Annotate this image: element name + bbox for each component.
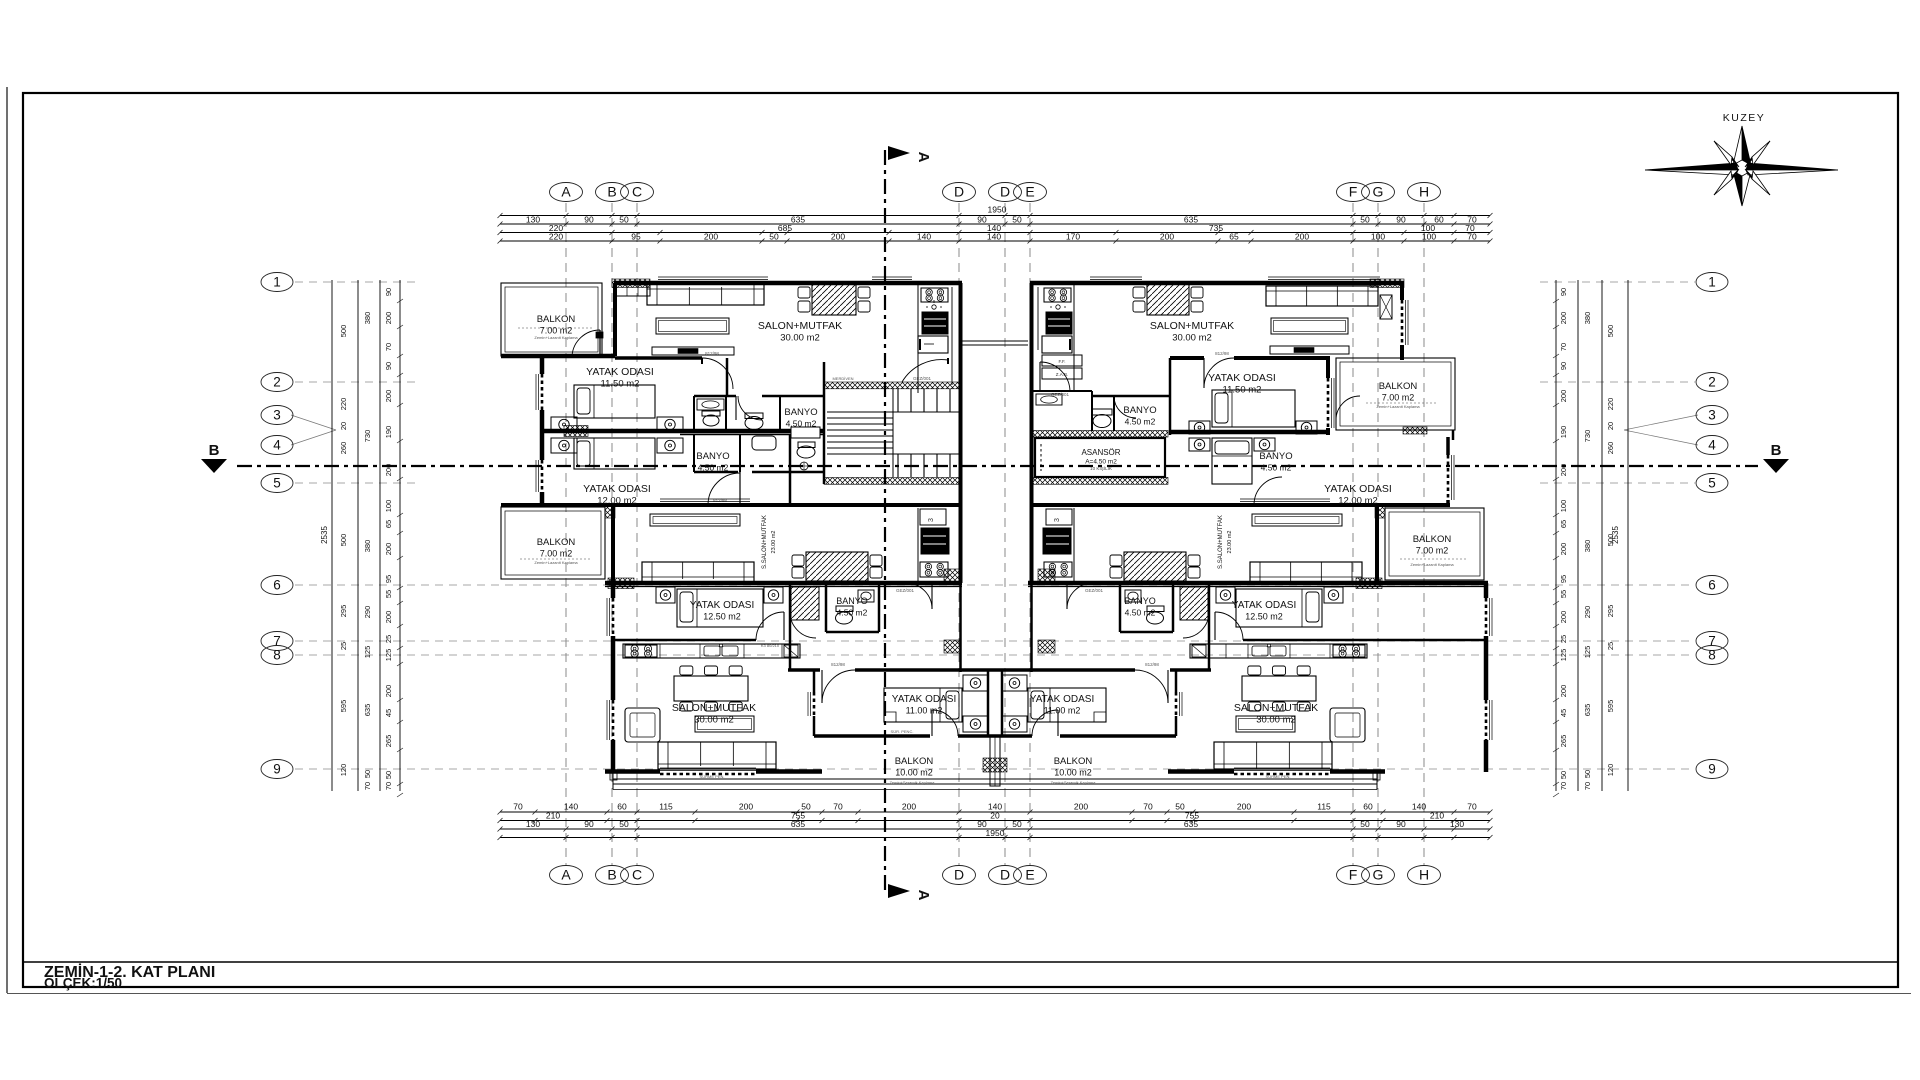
svg-text:90: 90 — [1559, 288, 1568, 296]
svg-text:220: 220 — [339, 398, 348, 411]
svg-text:4.50 m2: 4.50 m2 — [1261, 463, 1292, 473]
svg-text:635: 635 — [791, 819, 805, 829]
svg-text:200: 200 — [1160, 232, 1174, 242]
svg-text:90: 90 — [1396, 215, 1406, 225]
svg-text:635: 635 — [1583, 704, 1592, 717]
svg-text:220: 220 — [1606, 398, 1615, 411]
svg-text:70: 70 — [1467, 802, 1477, 812]
svg-text:295: 295 — [339, 605, 348, 618]
svg-text:130: 130 — [526, 215, 540, 225]
svg-text:20: 20 — [1606, 422, 1615, 430]
svg-text:YATAK ODASI: YATAK ODASI — [1324, 483, 1392, 495]
svg-text:500: 500 — [1606, 325, 1615, 338]
svg-text:25: 25 — [339, 642, 348, 650]
svg-text:23.00 m2: 23.00 m2 — [771, 531, 777, 554]
svg-text:70: 70 — [363, 782, 372, 790]
svg-text:50: 50 — [384, 771, 393, 779]
svg-text:90: 90 — [584, 819, 594, 829]
svg-text:50: 50 — [1012, 819, 1022, 829]
svg-text:10 KİŞİLİK: 10 KİŞİLİK — [1090, 465, 1113, 471]
svg-text:4.50 m2: 4.50 m2 — [786, 419, 817, 429]
svg-text:140: 140 — [987, 232, 1001, 242]
svg-text:SÜRME PEN.: SÜRME PEN. — [1266, 774, 1291, 779]
svg-text:170: 170 — [1066, 232, 1080, 242]
svg-text:65: 65 — [384, 520, 393, 528]
svg-text:7.00 m2: 7.00 m2 — [1382, 393, 1415, 403]
svg-text:125: 125 — [363, 646, 372, 659]
svg-text:2535: 2535 — [320, 526, 329, 544]
svg-text:500: 500 — [1606, 534, 1615, 547]
svg-text:1950: 1950 — [988, 205, 1007, 215]
svg-text:60: 60 — [1434, 215, 1444, 225]
svg-text:G: G — [1373, 184, 1384, 200]
svg-text:100: 100 — [1559, 500, 1568, 513]
svg-text:12.00 m2: 12.00 m2 — [1338, 496, 1378, 507]
svg-text:2: 2 — [273, 375, 281, 390]
svg-text:11.50 m2: 11.50 m2 — [601, 379, 640, 390]
svg-text:BALKON: BALKON — [537, 537, 576, 548]
svg-text:A=4.50 m2: A=4.50 m2 — [1085, 459, 1117, 466]
svg-text:70: 70 — [384, 343, 393, 351]
svg-text:SÜR. PENC.: SÜR. PENC. — [891, 729, 914, 734]
svg-text:B: B — [1771, 442, 1782, 459]
svg-text:730: 730 — [363, 430, 372, 443]
svg-text:BANYO: BANYO — [1259, 451, 1292, 462]
svg-text:BANYO: BANYO — [784, 407, 817, 418]
svg-text:5: 5 — [1708, 476, 1716, 491]
svg-text:265: 265 — [1559, 735, 1568, 748]
svg-text:C: C — [632, 867, 642, 883]
svg-text:8: 8 — [273, 648, 281, 663]
svg-text:130: 130 — [526, 819, 540, 829]
svg-text:70: 70 — [1143, 802, 1153, 812]
svg-text:50: 50 — [619, 215, 629, 225]
svg-text:295: 295 — [1606, 605, 1615, 618]
svg-text:635: 635 — [1184, 819, 1198, 829]
svg-text:90: 90 — [977, 215, 987, 225]
svg-text:BALKON: BALKON — [895, 756, 934, 767]
svg-text:SALON+MUTFAK: SALON+MUTFAK — [1150, 320, 1234, 332]
svg-text:3: 3 — [1708, 408, 1716, 423]
svg-text:7.00 m2: 7.00 m2 — [540, 549, 573, 559]
svg-text:635: 635 — [791, 215, 805, 225]
svg-text:BALKON: BALKON — [1413, 534, 1452, 545]
svg-text:200: 200 — [384, 543, 393, 556]
svg-text:812/98: 812/98 — [831, 662, 845, 667]
svg-text:Zemin+Lazanit Kaplama: Zemin+Lazanit Kaplama — [534, 560, 578, 565]
svg-text:140: 140 — [917, 232, 931, 242]
svg-text:65: 65 — [1559, 520, 1568, 528]
svg-text:ASANSÖR: ASANSÖR — [1081, 448, 1120, 457]
svg-text:200: 200 — [739, 802, 753, 812]
svg-text:G: G — [1373, 867, 1384, 883]
svg-text:GEZ/001: GEZ/001 — [1085, 588, 1104, 593]
svg-text:635: 635 — [363, 704, 372, 717]
svg-text:1950: 1950 — [986, 828, 1005, 838]
svg-text:YATAK ODASI: YATAK ODASI — [1208, 372, 1276, 384]
svg-text:70: 70 — [833, 802, 843, 812]
svg-text:685: 685 — [778, 223, 792, 233]
svg-text:SALON+MUTFAK: SALON+MUTFAK — [758, 320, 842, 332]
svg-text:6: 6 — [273, 578, 281, 593]
svg-text:C: C — [632, 184, 642, 200]
svg-text:D: D — [1000, 184, 1010, 200]
svg-text:200: 200 — [384, 611, 393, 624]
svg-text:260: 260 — [339, 442, 348, 455]
svg-text:50: 50 — [1175, 802, 1185, 812]
svg-text:8: 8 — [1708, 648, 1716, 663]
svg-text:20: 20 — [990, 811, 1000, 821]
svg-text:380: 380 — [1583, 540, 1592, 553]
svg-text:GEZ/001: GEZ/001 — [896, 588, 915, 593]
svg-text:BALKON: BALKON — [537, 314, 576, 325]
svg-text:B: B — [607, 184, 616, 200]
svg-text:190: 190 — [1559, 426, 1568, 439]
svg-text:30.00 m2: 30.00 m2 — [780, 333, 820, 344]
svg-text:200: 200 — [1559, 611, 1568, 624]
svg-text:MERDİVEN: MERDİVEN — [832, 376, 853, 381]
svg-text:200: 200 — [384, 312, 393, 325]
svg-text:60: 60 — [1363, 802, 1373, 812]
svg-text:9: 9 — [273, 762, 281, 777]
svg-text:D: D — [954, 867, 964, 883]
svg-text:812/98: 812/98 — [1145, 662, 1159, 667]
svg-text:50: 50 — [1583, 770, 1592, 778]
svg-text:YATAK ODASI: YATAK ODASI — [1030, 694, 1094, 705]
svg-text:H: H — [1419, 867, 1429, 883]
svg-text:125: 125 — [1583, 646, 1592, 659]
svg-text:YATAK ODASI: YATAK ODASI — [586, 366, 654, 378]
svg-text:812/98: 812/98 — [1215, 351, 1229, 356]
svg-text:4: 4 — [1708, 438, 1716, 453]
svg-text:70: 70 — [1583, 782, 1592, 790]
svg-text:200: 200 — [1559, 312, 1568, 325]
svg-text:200: 200 — [1559, 390, 1568, 403]
svg-text:30.00 m2: 30.00 m2 — [1172, 333, 1212, 344]
svg-text:200: 200 — [1559, 685, 1568, 698]
svg-text:4.50 m2: 4.50 m2 — [837, 608, 868, 618]
svg-text:70: 70 — [1559, 343, 1568, 351]
svg-text:200: 200 — [902, 802, 916, 812]
svg-text:50: 50 — [1559, 771, 1568, 779]
svg-text:B: B — [607, 867, 616, 883]
svg-text:B: B — [209, 442, 220, 459]
svg-text:BANYO: BANYO — [836, 596, 868, 606]
svg-text:220: 220 — [549, 232, 563, 242]
svg-text:23.00 m2: 23.00 m2 — [1227, 531, 1233, 554]
svg-text:120: 120 — [339, 764, 348, 777]
svg-text:70: 70 — [1559, 782, 1568, 790]
svg-text:50: 50 — [1360, 215, 1370, 225]
svg-text:90: 90 — [1396, 819, 1406, 829]
svg-text:60: 60 — [617, 802, 627, 812]
svg-text:SALON+MUTFAK: SALON+MUTFAK — [1234, 702, 1318, 714]
svg-text:A: A — [561, 867, 571, 883]
svg-text:500: 500 — [339, 325, 348, 338]
svg-text:11.50 m2: 11.50 m2 — [1223, 385, 1262, 396]
svg-text:5: 5 — [273, 476, 281, 491]
svg-text:4.50 m2: 4.50 m2 — [698, 463, 729, 473]
svg-text:30.00 m2: 30.00 m2 — [1256, 715, 1296, 726]
svg-text:A: A — [915, 890, 932, 901]
svg-text:95: 95 — [1559, 575, 1568, 583]
svg-text:4.50 m2: 4.50 m2 — [1125, 417, 1156, 427]
svg-text:12.00 m2: 12.00 m2 — [597, 496, 637, 507]
svg-text:120: 120 — [1606, 764, 1615, 777]
svg-text:25: 25 — [1559, 635, 1568, 643]
svg-text:200: 200 — [704, 232, 718, 242]
svg-text:12.50 m2: 12.50 m2 — [1245, 612, 1283, 622]
svg-text:Zemin+Seramik Kaplama: Zemin+Seramik Kaplama — [889, 780, 935, 785]
svg-text:A: A — [915, 152, 932, 163]
svg-text:260: 260 — [1606, 442, 1615, 455]
svg-text:D: D — [954, 184, 964, 200]
svg-text:1: 1 — [1708, 275, 1716, 290]
svg-text:595: 595 — [1606, 700, 1615, 713]
svg-text:730: 730 — [1583, 430, 1592, 443]
svg-text:Z.A.B.: Z.A.B. — [1056, 372, 1069, 377]
svg-text:130: 130 — [1450, 819, 1464, 829]
svg-text:265: 265 — [384, 735, 393, 748]
svg-text:SALON+MUTFAK: SALON+MUTFAK — [672, 702, 756, 714]
svg-text:200: 200 — [1237, 802, 1251, 812]
svg-text:115: 115 — [1317, 802, 1331, 812]
svg-text:210: 210 — [1430, 811, 1444, 821]
svg-text:50: 50 — [1360, 819, 1370, 829]
svg-text:BALKON: BALKON — [1379, 381, 1418, 392]
svg-text:GEZ/001: GEZ/001 — [913, 376, 932, 381]
svg-text:50: 50 — [769, 232, 779, 242]
svg-text:290: 290 — [363, 606, 372, 619]
svg-text:4: 4 — [273, 438, 281, 453]
svg-text:BANYO: BANYO — [1124, 596, 1156, 606]
svg-text:45: 45 — [384, 709, 393, 717]
svg-text:S.SALON+MUTFAK: S.SALON+MUTFAK — [1218, 515, 1224, 569]
svg-text:380: 380 — [1583, 312, 1592, 325]
svg-text:D: D — [1000, 867, 1010, 883]
svg-text:55: 55 — [1559, 590, 1568, 598]
svg-text:100: 100 — [1371, 232, 1385, 242]
svg-text:50: 50 — [1012, 215, 1022, 225]
svg-text:70: 70 — [513, 802, 523, 812]
svg-text:12.50 m2: 12.50 m2 — [703, 612, 741, 622]
svg-text:735: 735 — [1209, 223, 1223, 233]
svg-text:90: 90 — [1559, 362, 1568, 370]
svg-text:200: 200 — [1074, 802, 1088, 812]
svg-text:1: 1 — [273, 275, 281, 290]
svg-text:25: 25 — [1606, 642, 1615, 650]
svg-text:F.F.: F.F. — [1058, 359, 1065, 364]
svg-text:595: 595 — [339, 700, 348, 713]
svg-text:70: 70 — [1467, 232, 1477, 242]
svg-text:95: 95 — [631, 232, 641, 242]
svg-text:70: 70 — [384, 782, 393, 790]
svg-text:90: 90 — [384, 362, 393, 370]
svg-text:290: 290 — [1583, 606, 1592, 619]
svg-text:10.00 m2: 10.00 m2 — [895, 768, 933, 778]
svg-text:11.00 m2: 11.00 m2 — [906, 706, 943, 716]
svg-text:SÜRME PEN.: SÜRME PEN. — [700, 774, 725, 779]
svg-text:500: 500 — [339, 534, 348, 547]
svg-text:S.SALON+MUTFAK: S.SALON+MUTFAK — [762, 515, 768, 569]
svg-text:125: 125 — [384, 649, 393, 662]
svg-text:ÖLÇEK:1/50: ÖLÇEK:1/50 — [44, 976, 122, 991]
svg-text:200: 200 — [384, 390, 393, 403]
svg-text:Zemin+Seramik Kaplama: Zemin+Seramik Kaplama — [1050, 780, 1096, 785]
svg-text:11.00 m2: 11.00 m2 — [1044, 706, 1081, 716]
svg-text:F: F — [1349, 184, 1358, 200]
svg-text:635: 635 — [1184, 215, 1198, 225]
svg-text:380: 380 — [363, 540, 372, 553]
svg-text:Zemin+Lazanit Kaplama: Zemin+Lazanit Kaplama — [1376, 404, 1420, 409]
svg-text:190: 190 — [384, 426, 393, 439]
svg-text:50: 50 — [363, 770, 372, 778]
svg-text:200: 200 — [1295, 232, 1309, 242]
svg-text:100: 100 — [384, 500, 393, 513]
svg-text:7.00 m2: 7.00 m2 — [1416, 546, 1449, 556]
svg-text:100: 100 — [1422, 232, 1436, 242]
svg-text:125: 125 — [1559, 649, 1568, 662]
svg-text:YATAK ODASI: YATAK ODASI — [1232, 600, 1296, 611]
svg-text:30.00 m2: 30.00 m2 — [694, 715, 734, 726]
svg-text:H: H — [1419, 184, 1429, 200]
svg-text:50: 50 — [619, 819, 629, 829]
svg-text:200: 200 — [1559, 543, 1568, 556]
svg-text:BANYO: BANYO — [696, 451, 729, 462]
svg-text:55: 55 — [384, 590, 393, 598]
svg-text:YATAK ODASI: YATAK ODASI — [892, 694, 956, 705]
svg-text:7: 7 — [273, 634, 281, 649]
svg-text:6: 6 — [1708, 578, 1716, 593]
svg-text:BANYO: BANYO — [1123, 405, 1156, 416]
svg-text:Zemin+Lazanit Kaplama: Zemin+Lazanit Kaplama — [534, 335, 578, 340]
svg-text:380: 380 — [363, 312, 372, 325]
svg-text:65: 65 — [1229, 232, 1239, 242]
svg-text:200: 200 — [384, 685, 393, 698]
svg-text:25: 25 — [384, 635, 393, 643]
svg-text:200: 200 — [831, 232, 845, 242]
svg-text:140: 140 — [564, 802, 578, 812]
svg-text:KUZEY: KUZEY — [1723, 112, 1766, 124]
svg-text:140: 140 — [1412, 802, 1426, 812]
svg-text:10.00 m2: 10.00 m2 — [1054, 768, 1092, 778]
svg-text:7.00 m2: 7.00 m2 — [540, 326, 573, 336]
svg-text:7: 7 — [1708, 634, 1716, 649]
svg-text:2: 2 — [1708, 375, 1716, 390]
svg-text:3: 3 — [928, 518, 935, 522]
svg-text:F: F — [1349, 867, 1358, 883]
svg-text:YATAK ODASI: YATAK ODASI — [583, 483, 651, 495]
svg-text:BALKON: BALKON — [1054, 756, 1093, 767]
svg-text:20: 20 — [339, 422, 348, 430]
svg-text:3: 3 — [1054, 518, 1061, 522]
svg-text:95: 95 — [384, 575, 393, 583]
svg-text:E: E — [1025, 867, 1034, 883]
svg-text:4.50 m2: 4.50 m2 — [1125, 608, 1156, 618]
svg-text:E: E — [1025, 184, 1034, 200]
svg-text:3: 3 — [273, 408, 281, 423]
svg-text:Zemin+Lazanit Kaplama: Zemin+Lazanit Kaplama — [1410, 562, 1454, 567]
svg-text:9: 9 — [1708, 762, 1716, 777]
svg-text:YATAK ODASI: YATAK ODASI — [690, 600, 754, 611]
svg-text:115: 115 — [659, 802, 673, 812]
svg-text:90: 90 — [384, 288, 393, 296]
svg-text:210: 210 — [546, 811, 560, 821]
svg-text:A: A — [561, 184, 571, 200]
svg-text:90: 90 — [584, 215, 594, 225]
svg-text:45: 45 — [1559, 709, 1568, 717]
